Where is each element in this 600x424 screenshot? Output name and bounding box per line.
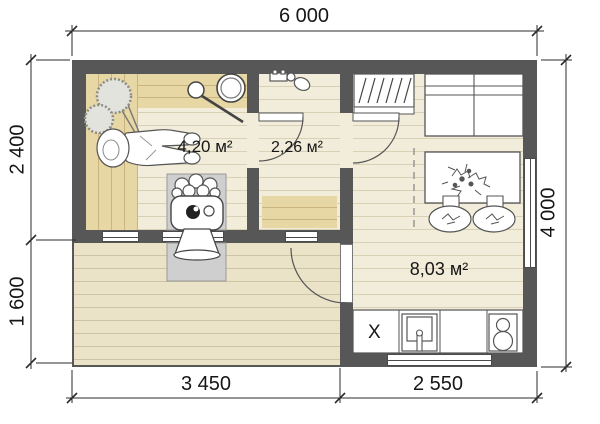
sauna-side-bench — [86, 74, 138, 230]
shower-mat — [262, 196, 337, 228]
dim-top: 6 000 — [254, 5, 354, 28]
dim-bottom-right: 2 550 — [388, 373, 488, 396]
lounge-area-label: 8,03 м² — [389, 259, 489, 280]
stove-hatch-window — [162, 231, 224, 242]
shower-area-label: 2,26 м² — [252, 139, 342, 157]
lounge-room-floor — [353, 74, 523, 353]
entrance-door-opening — [340, 244, 353, 303]
lounge-window — [524, 158, 536, 268]
sauna-area-label: 4,20 м² — [155, 137, 255, 157]
sauna-top-bench — [138, 74, 247, 108]
kitchen-window — [387, 354, 492, 366]
dim-right: 4 000 — [538, 168, 561, 258]
terrace-deck — [74, 243, 340, 365]
shower-window — [285, 231, 318, 242]
fridge-label: X — [368, 322, 381, 344]
dim-bottom-left: 3 450 — [156, 373, 256, 396]
dim-left-upper: 2 400 — [7, 105, 30, 195]
dim-left-lower: 1 600 — [7, 257, 30, 347]
floor-plan: 6 000 2 400 1 600 4 000 3 450 2 550 4,20… — [0, 0, 600, 424]
sauna-window — [102, 231, 139, 242]
